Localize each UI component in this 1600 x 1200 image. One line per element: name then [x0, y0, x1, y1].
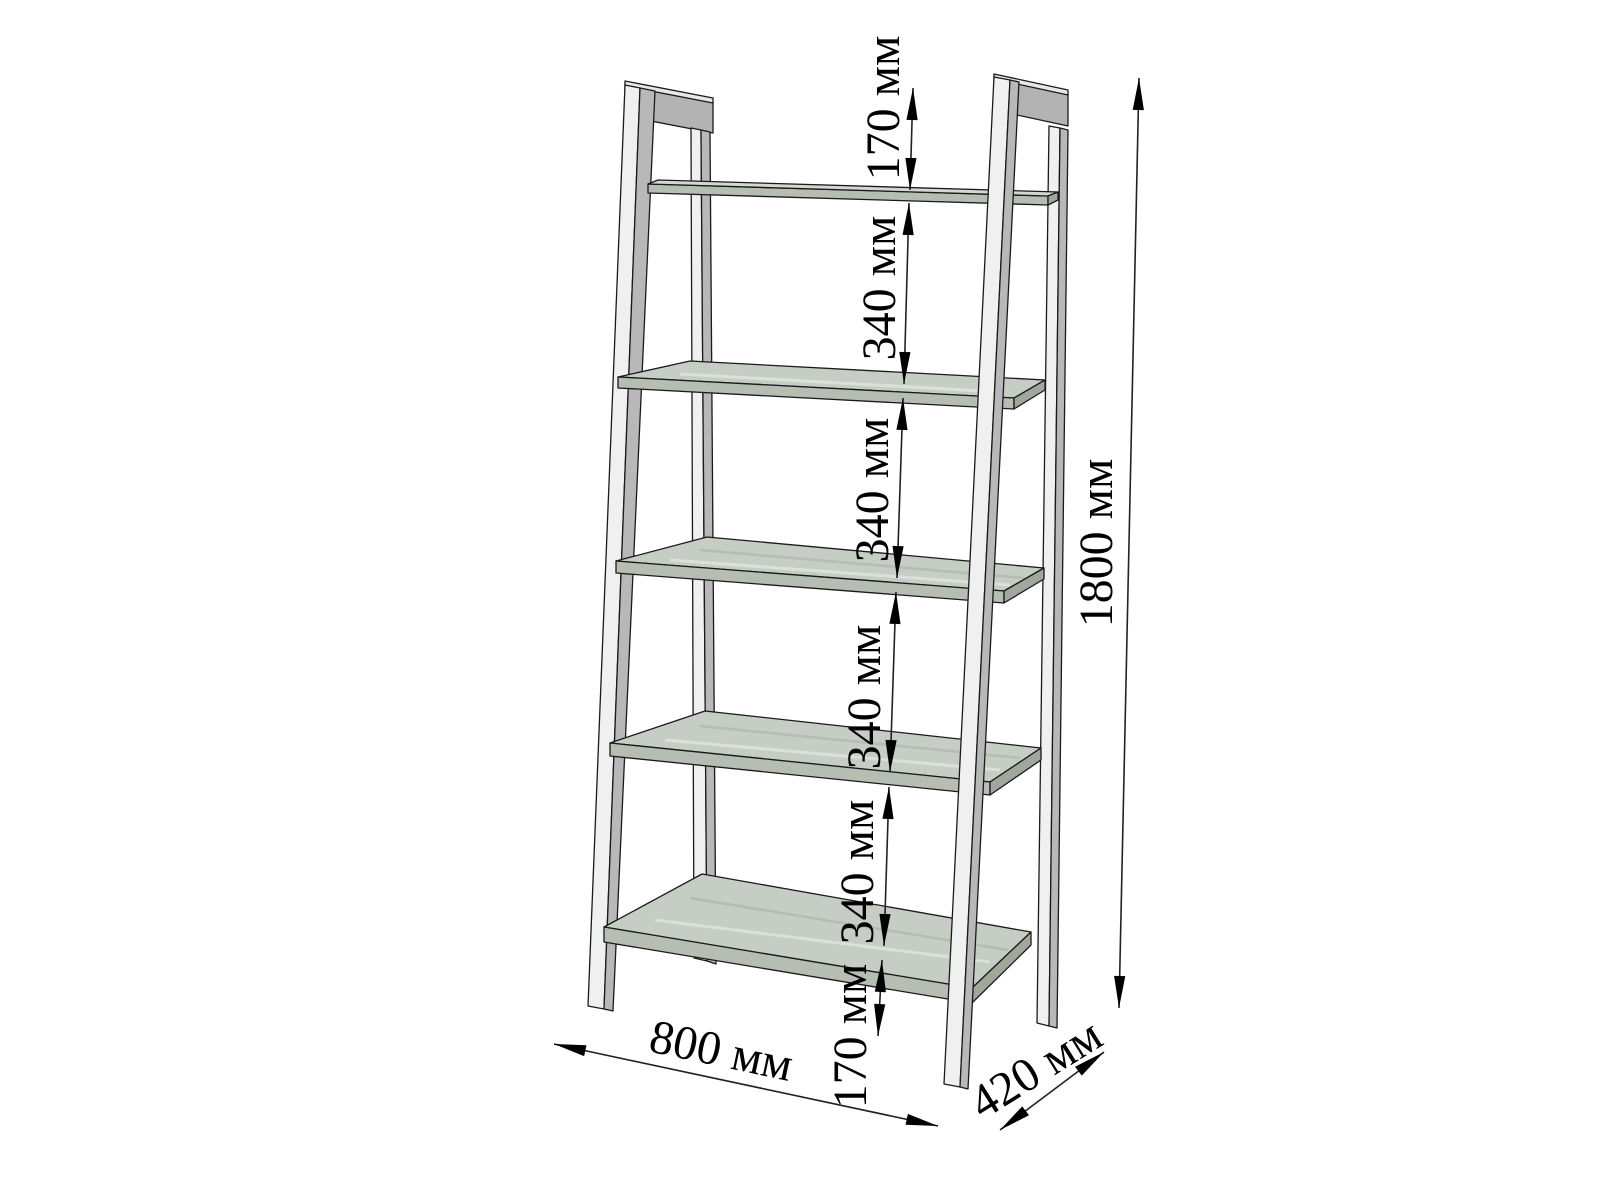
shelf-unit [588, 74, 1068, 1089]
dim-label-depth: 420 мм [960, 1008, 1111, 1130]
dim-label-340-4: 340 мм [831, 800, 884, 945]
dim-label-bottom-170: 170 мм [824, 964, 877, 1109]
dim-label-height: 1800 мм [1070, 459, 1123, 628]
diagram-canvas: 170 мм 340 мм 340 мм 340 мм 340 мм 170 м… [0, 0, 1600, 1200]
dim-label-340-1: 340 мм [853, 216, 906, 361]
dim-line-top-170 [910, 88, 913, 190]
height-dimension: 1800 мм [1070, 78, 1139, 1008]
ladder-shelf-dimension-diagram: 170 мм 340 мм 340 мм 340 мм 340 мм 170 м… [0, 0, 1600, 1200]
depth-dimension: 420 мм [960, 1008, 1111, 1130]
width-dimension: 800 мм [554, 1010, 938, 1126]
dim-label-340-2: 340 мм [846, 418, 899, 563]
dim-label-340-3: 340 мм [838, 625, 891, 770]
dim-label-top-170: 170 мм [857, 36, 910, 181]
